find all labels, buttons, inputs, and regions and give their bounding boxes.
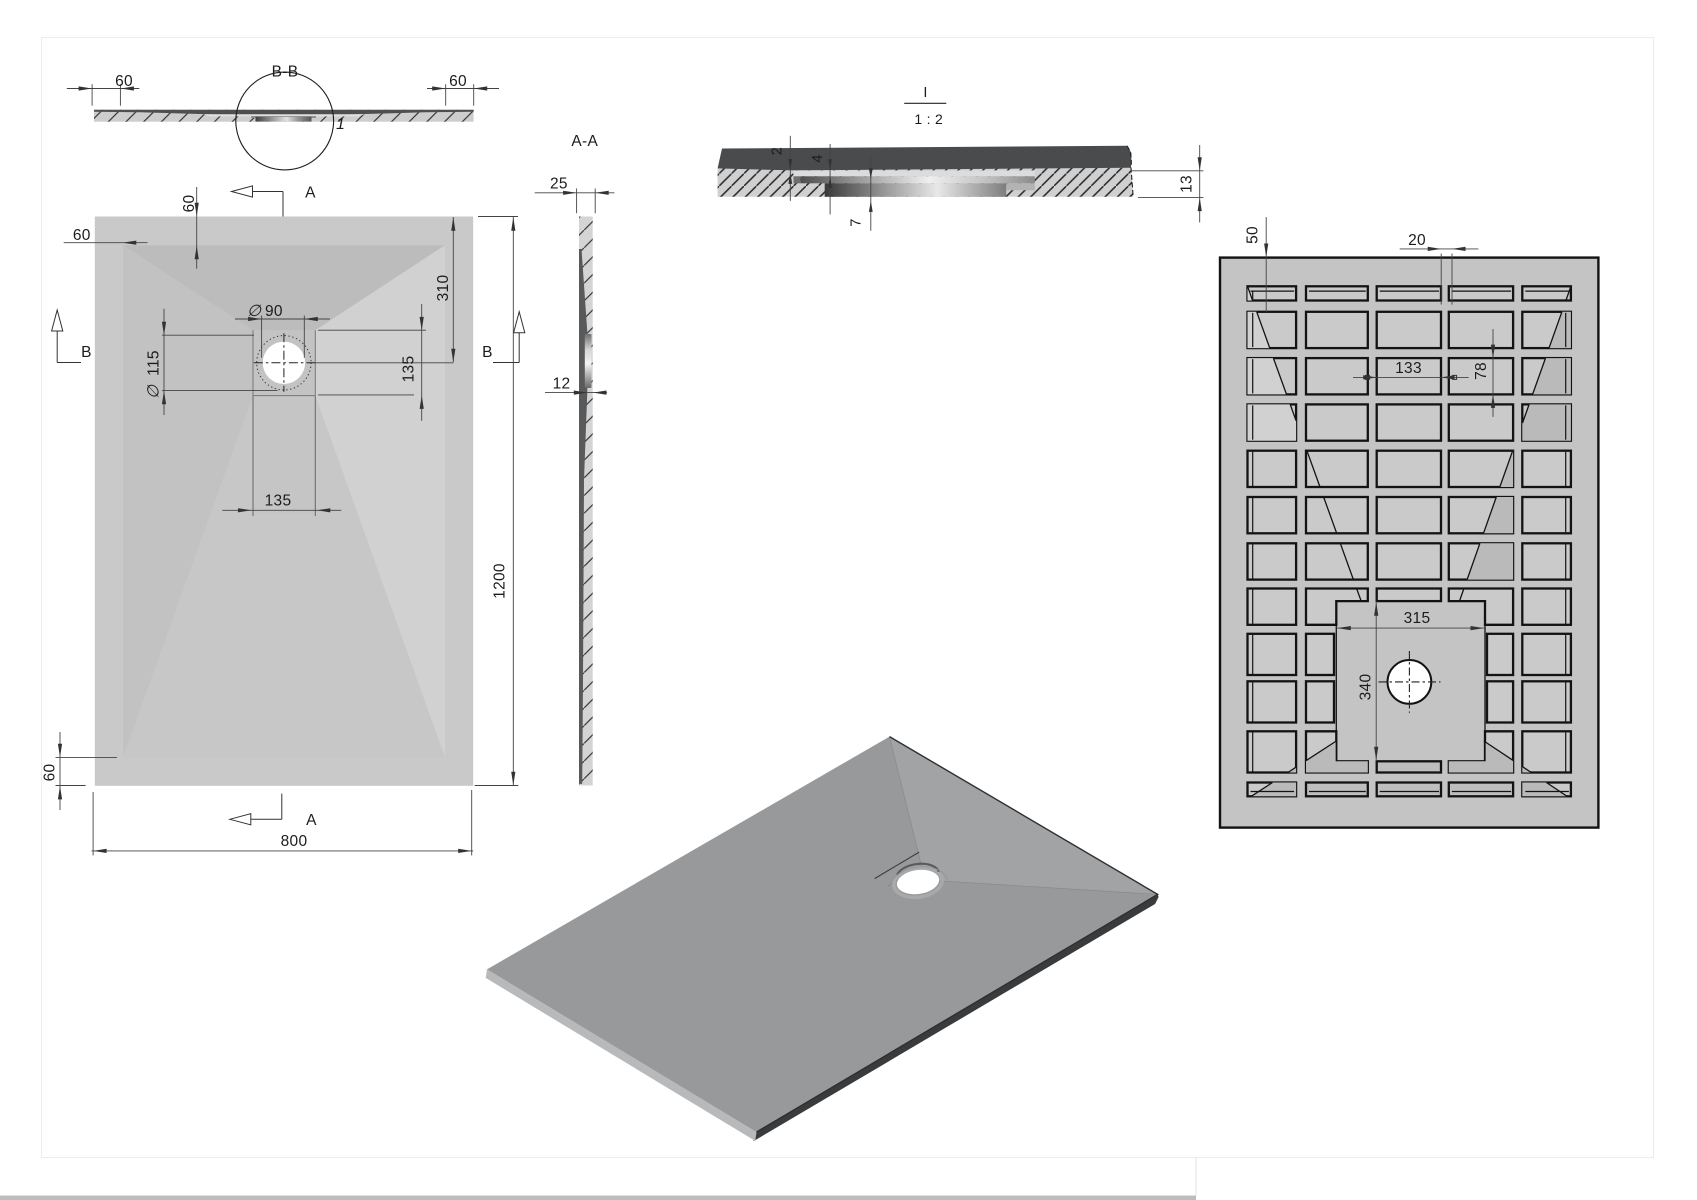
svg-text:60: 60: [449, 73, 467, 90]
svg-text:A: A: [305, 185, 316, 202]
svg-text:60: 60: [42, 764, 59, 782]
svg-text:1 : 2: 1 : 2: [914, 111, 943, 127]
svg-text:310: 310: [435, 275, 452, 302]
svg-text:1200: 1200: [492, 563, 509, 599]
svg-text:7: 7: [849, 218, 865, 226]
svg-text:115: 115: [146, 350, 163, 376]
svg-text:60: 60: [115, 73, 133, 90]
svg-text:2: 2: [770, 147, 786, 155]
svg-text:50: 50: [1245, 226, 1262, 244]
svg-text:340: 340: [1358, 674, 1375, 701]
svg-text:90: 90: [265, 303, 283, 320]
svg-text:12: 12: [553, 376, 571, 393]
svg-text:60: 60: [73, 227, 91, 244]
svg-text:60: 60: [181, 195, 198, 213]
svg-text:78: 78: [1473, 362, 1490, 380]
svg-text:135: 135: [401, 356, 418, 383]
svg-text:I: I: [923, 85, 927, 101]
svg-text:20: 20: [1408, 232, 1426, 249]
svg-text:800: 800: [281, 833, 308, 850]
svg-text:25: 25: [550, 175, 568, 192]
svg-text:B: B: [81, 344, 92, 361]
svg-text:135: 135: [265, 492, 292, 509]
svg-text:A: A: [306, 812, 317, 829]
svg-text:1: 1: [336, 116, 345, 133]
svg-text:13: 13: [1179, 175, 1196, 193]
svg-text:∅: ∅: [247, 303, 262, 320]
svg-text:315: 315: [1404, 610, 1431, 627]
svg-text:B: B: [482, 344, 493, 361]
svg-text:∅: ∅: [146, 384, 163, 399]
svg-text:B-B: B-B: [272, 64, 299, 81]
svg-text:4: 4: [810, 154, 826, 162]
svg-text:A-A: A-A: [571, 133, 598, 150]
svg-text:133: 133: [1395, 360, 1422, 377]
